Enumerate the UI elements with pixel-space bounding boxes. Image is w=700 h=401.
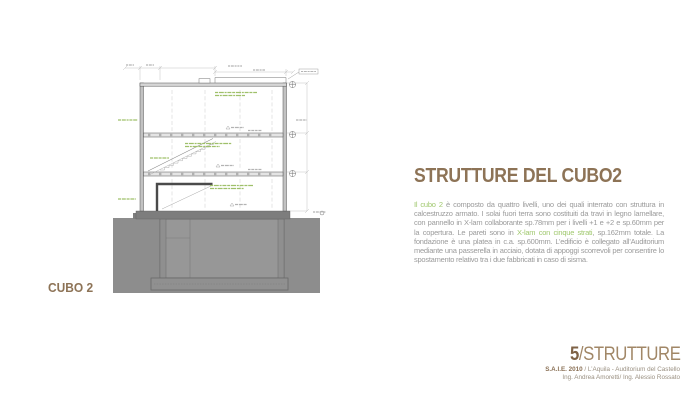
grid-lines: [172, 90, 272, 209]
event-location: / L’Aquila - Auditorium del Castello: [583, 366, 680, 373]
basement-structure: [151, 219, 288, 290]
event-name: S.A.I.E. 2010: [545, 366, 582, 373]
ground-slab: [133, 211, 290, 219]
section-number: 5: [570, 344, 579, 365]
engineers-credit-line: Ing. Andrea Amoretti/ Ing. Alessio Rossa…: [545, 374, 680, 382]
level-datum-markers: [289, 81, 324, 215]
event-credit-line: S.A.I.E. 2010 / L’Aquila - Auditorium de…: [545, 366, 680, 374]
section-number-title: 5/STRUTTURE: [570, 345, 680, 366]
description-paragraph: Il cubo 2 è composto da quattro livelli,…: [414, 200, 664, 264]
level-flag: [288, 69, 318, 79]
cubo2-caption: CUBO 2: [48, 280, 93, 295]
presentation-slide: CUBO 2 STRUTTURE DEL CUBO2 Il cubo 2 è c…: [0, 0, 700, 401]
dimension-lines: [123, 66, 309, 213]
cubo2-section-drawing: [105, 58, 335, 298]
rooftop-unit: [199, 79, 210, 83]
stair-wall: [157, 184, 213, 211]
building-section-svg: [105, 58, 335, 298]
slide-footer: 5/STRUTTURE S.A.I.E. 2010 / L’Aquila - A…: [545, 345, 680, 382]
section-name: /STRUTTURE: [579, 344, 680, 365]
highlight-cubo2: Il cubo 2: [414, 200, 443, 209]
page-title: STRUTTURE DEL CUBO2: [414, 165, 622, 188]
building-shell: [140, 78, 287, 212]
highlight-xlam: X-lam con cinque strati: [517, 228, 592, 237]
